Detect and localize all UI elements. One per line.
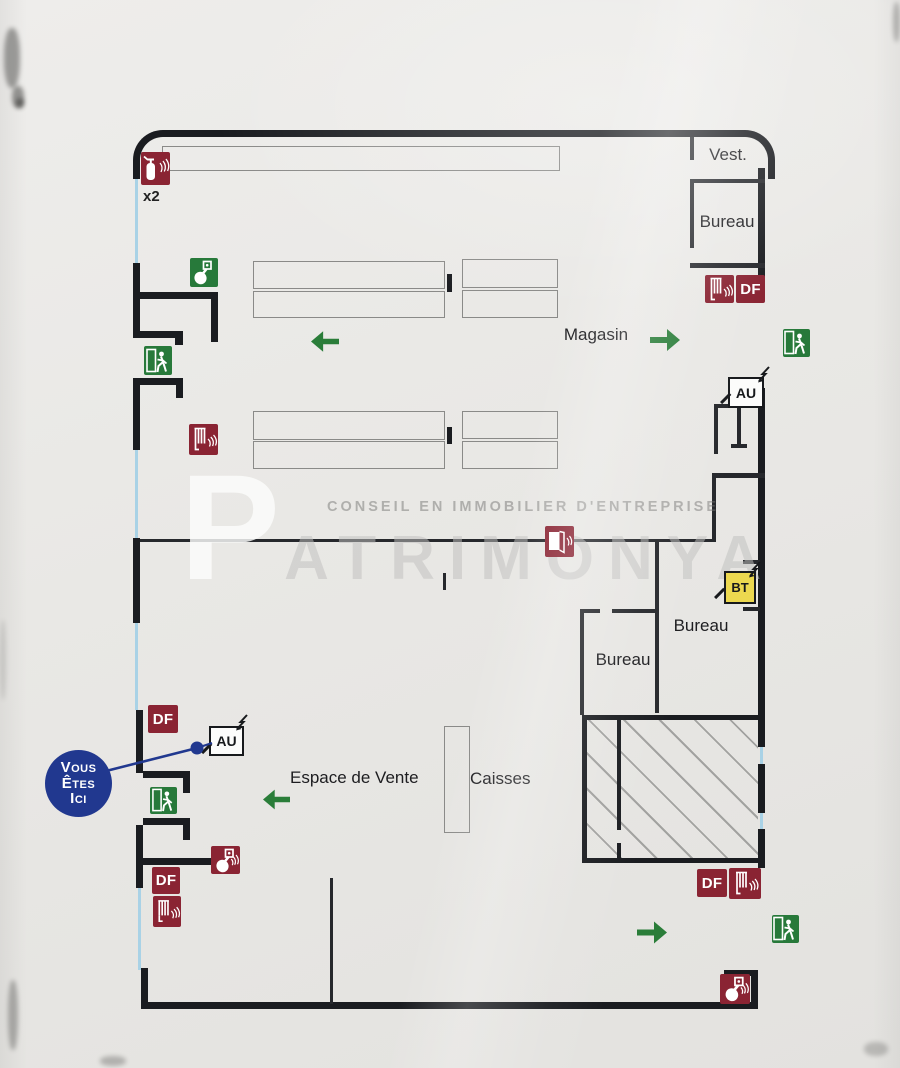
wall <box>183 818 190 840</box>
partition <box>737 408 741 446</box>
wall <box>582 715 587 863</box>
shelf-rack <box>462 290 558 318</box>
room-label-vest: Vest. <box>696 145 760 165</box>
you-are-here-badge: Vous Êtes Ici <box>45 750 112 817</box>
fire-extinguisher-icon <box>141 152 170 185</box>
manual-call-point-icon <box>720 974 750 1004</box>
wall <box>758 764 765 813</box>
wall <box>136 710 143 773</box>
evacuation-arrow-right <box>637 921 667 944</box>
shelf-rack <box>253 291 445 318</box>
watermark-brand-logo: PATRIMONYA <box>180 452 775 634</box>
df-marker: DF <box>736 275 765 303</box>
photo-speck <box>100 1056 126 1066</box>
fire-door-icon <box>545 526 574 557</box>
shelf-rack <box>253 411 445 440</box>
au-label: AU <box>736 385 756 401</box>
wall <box>582 715 765 720</box>
partition <box>714 404 718 454</box>
partition <box>731 444 747 448</box>
df-label: DF <box>740 281 761 298</box>
evacuation-arrow-left <box>311 331 339 352</box>
hatched-zone <box>587 720 758 858</box>
evacuation-arrow-right <box>650 329 680 351</box>
shelf-rack <box>162 146 560 171</box>
extinguisher-count-label: x2 <box>143 188 160 205</box>
wall <box>136 825 143 888</box>
window-line <box>135 623 138 710</box>
df-marker: DF <box>152 867 180 894</box>
shelf-rack <box>253 261 445 289</box>
wall <box>617 843 621 860</box>
df-label: DF <box>153 711 174 728</box>
partition <box>447 274 452 292</box>
fire-hose-reel-icon <box>153 896 181 927</box>
fire-hose-reel-icon <box>729 868 761 899</box>
floor-plan: x2 DF AU BT DF AU DF DF Vest. Bureau Mag… <box>0 0 900 1068</box>
partition <box>447 427 452 444</box>
room-label-espace-de-vente: Espace de Vente <box>290 768 419 788</box>
you-are-here-line: Ici <box>70 791 87 807</box>
window-line <box>135 450 138 538</box>
emergency-exit-icon <box>144 346 172 375</box>
evacuation-arrow-left <box>263 789 290 810</box>
you-are-here-line: Vous <box>61 760 97 776</box>
wall <box>176 378 183 398</box>
df-marker: DF <box>148 705 178 733</box>
photo-speck <box>864 1042 888 1056</box>
room-label-caisses: Caisses <box>470 769 530 789</box>
partition <box>690 137 694 160</box>
photo-speck <box>893 2 900 42</box>
wall <box>133 263 140 338</box>
emergency-exit-icon <box>772 915 799 943</box>
lightning-icon <box>756 366 770 383</box>
room-label-bureau: Bureau <box>692 212 762 232</box>
wall <box>133 385 140 450</box>
wall <box>140 292 218 299</box>
room-label-magasin: Magasin <box>558 325 634 345</box>
wall <box>143 818 183 825</box>
df-label: DF <box>156 872 177 889</box>
emergency-exit-icon <box>783 329 810 357</box>
df-label: DF <box>702 875 723 892</box>
you-are-here-line: Êtes <box>62 776 95 792</box>
partition <box>690 179 765 183</box>
photo-speck <box>8 980 18 1050</box>
room-label-bureau: Bureau <box>586 650 660 670</box>
window-line <box>760 747 763 764</box>
partition <box>690 263 765 268</box>
df-marker: DF <box>697 869 727 897</box>
photo-speck <box>16 98 24 108</box>
photo-speck <box>0 620 6 700</box>
exit-unlock-button-icon <box>190 258 218 287</box>
wall <box>141 1002 758 1009</box>
window-line <box>760 813 763 829</box>
checkout-counter <box>444 726 470 833</box>
wall <box>758 829 765 868</box>
lightning-icon <box>747 561 761 578</box>
wall <box>183 771 190 793</box>
wall <box>175 331 183 345</box>
wall <box>143 858 213 865</box>
fire-hose-reel-icon <box>705 275 734 303</box>
wall <box>143 771 183 778</box>
manual-call-point-icon <box>211 846 240 874</box>
wall <box>582 858 758 863</box>
window-line <box>135 172 138 263</box>
wall <box>133 538 140 623</box>
wall <box>617 720 621 830</box>
lightning-icon <box>234 714 248 731</box>
au-label: AU <box>216 733 236 749</box>
wall <box>211 292 218 342</box>
shelf-rack <box>462 259 558 288</box>
photo-speck <box>12 86 24 108</box>
photo-speck <box>4 28 20 88</box>
emergency-exit-icon <box>150 787 177 814</box>
shelf-rack <box>462 411 558 439</box>
wall <box>170 130 730 137</box>
fire-hose-reel-icon <box>189 424 218 455</box>
partition <box>330 878 333 1004</box>
window-line <box>138 888 141 970</box>
bt-label: BT <box>731 580 748 595</box>
